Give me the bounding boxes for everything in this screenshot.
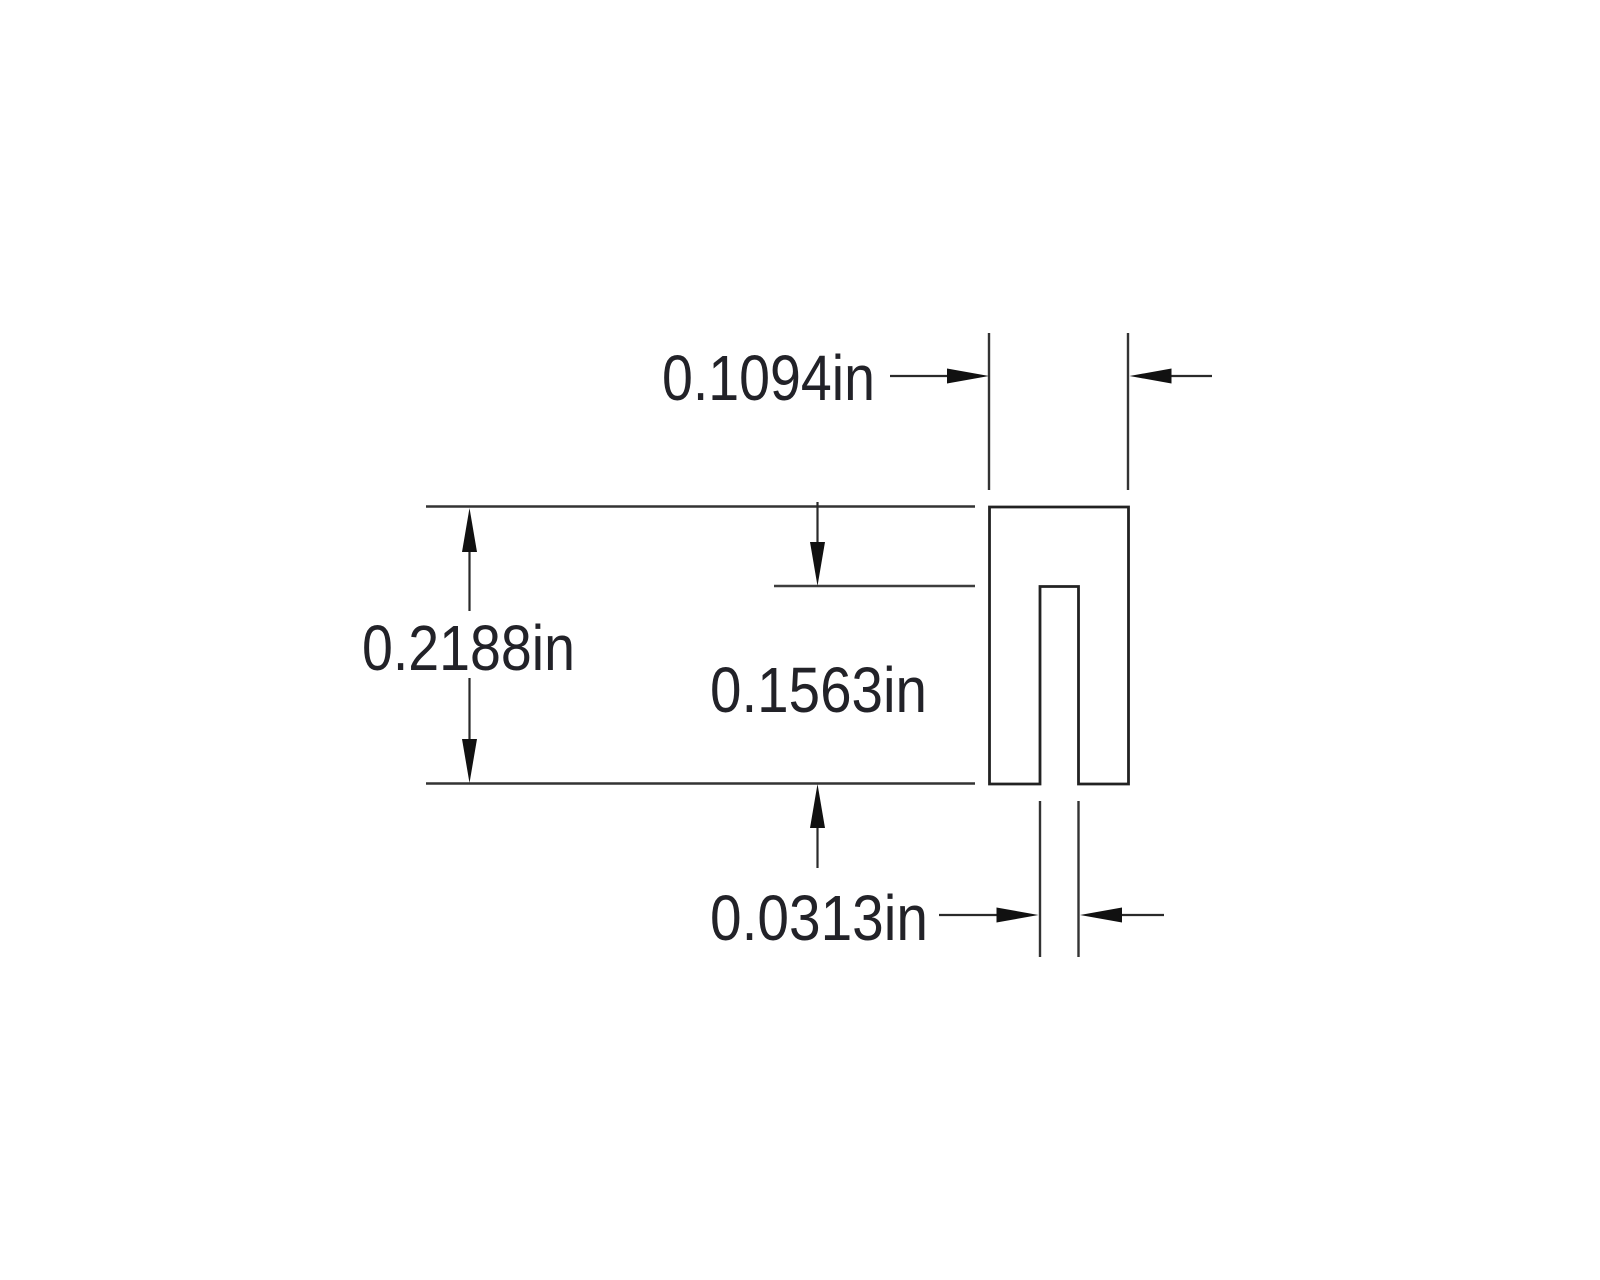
svg-text:0.1563in: 0.1563in bbox=[710, 654, 927, 726]
svg-text:0.2188in: 0.2188in bbox=[362, 612, 575, 684]
svg-text:0.0313in: 0.0313in bbox=[710, 882, 928, 954]
svg-text:0.1094in: 0.1094in bbox=[662, 342, 875, 414]
